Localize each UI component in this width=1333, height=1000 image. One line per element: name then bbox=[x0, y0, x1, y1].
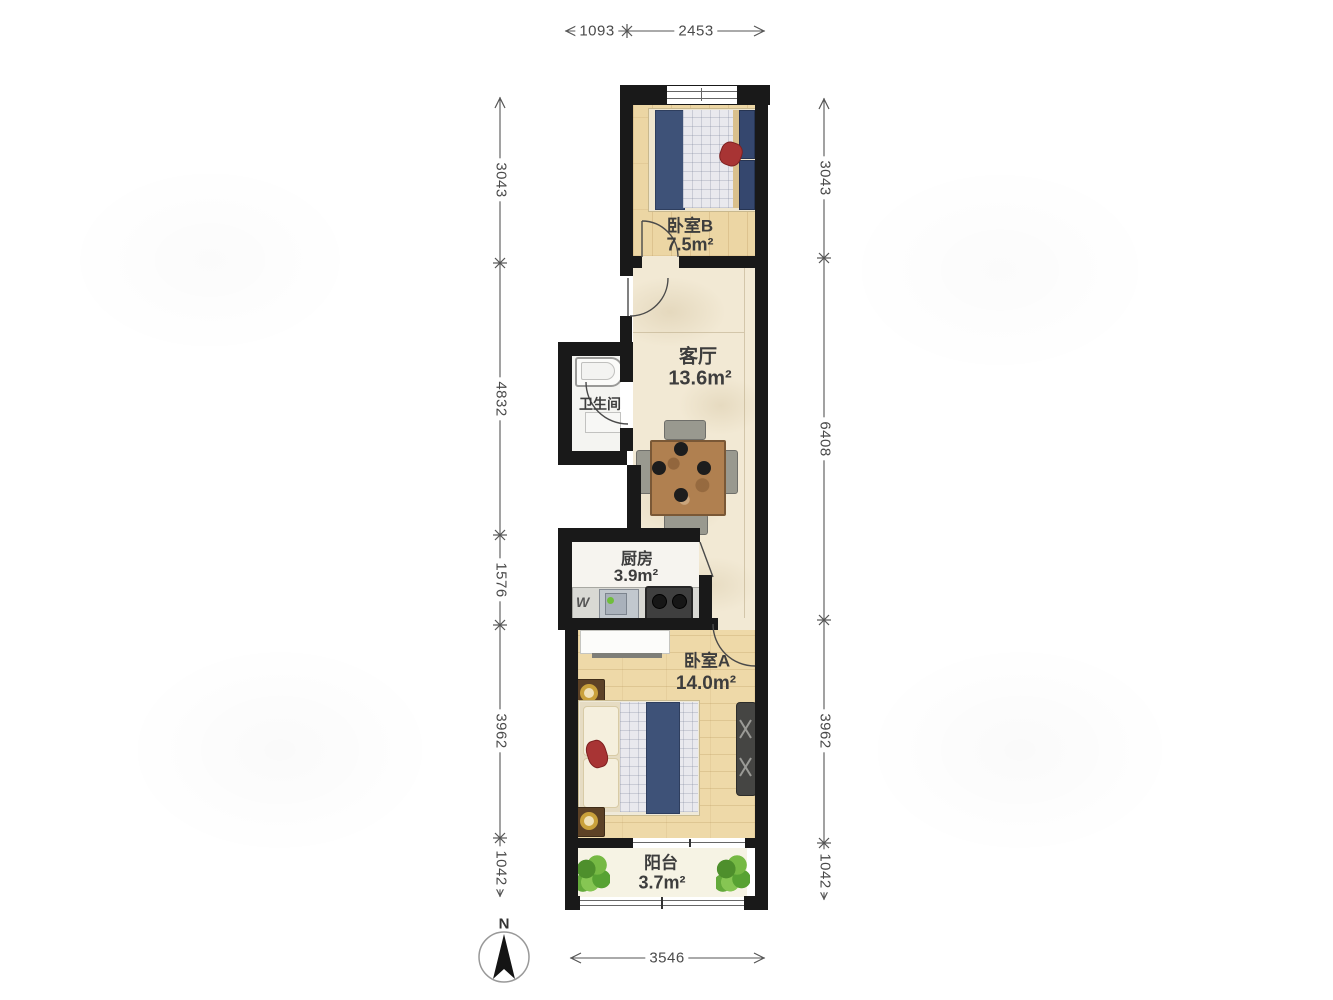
kitchen-door-diagonal bbox=[700, 542, 713, 577]
room-area-bedroom-b: 7.5m² bbox=[666, 235, 713, 256]
compass-north-label: N bbox=[499, 916, 510, 933]
dim-left-1042: 1042 bbox=[493, 846, 510, 889]
dim-left-1576: 1576 bbox=[493, 558, 510, 601]
room-area-bedroom-a: 14.0m² bbox=[676, 673, 736, 695]
dim-top-1093: 1093 bbox=[575, 23, 618, 40]
dim-right-1042: 1042 bbox=[817, 849, 834, 892]
floorplan-canvas: W bbox=[0, 0, 1333, 1000]
dim-bottom-3546: 3546 bbox=[645, 950, 688, 967]
dimension-marks bbox=[493, 24, 831, 963]
dim-right-3043: 3043 bbox=[817, 156, 834, 199]
dim-right-3962: 3962 bbox=[817, 709, 834, 752]
wardrobe-x-marks bbox=[740, 720, 751, 776]
room-label-balcony: 阳台 bbox=[644, 849, 678, 874]
compass-north-icon bbox=[479, 932, 529, 982]
dimension-lines bbox=[500, 31, 824, 958]
dim-left-3043: 3043 bbox=[493, 158, 510, 201]
dim-left-4832: 4832 bbox=[493, 377, 510, 420]
dim-top-2453: 2453 bbox=[674, 23, 717, 40]
dim-right-6408: 6408 bbox=[817, 417, 834, 460]
room-area-kitchen: 3.9m² bbox=[614, 566, 658, 586]
door-arcs bbox=[586, 221, 755, 666]
room-label-bedroom-a: 卧室A bbox=[684, 647, 730, 672]
room-label-living-room: 客厅 bbox=[679, 342, 717, 369]
room-label-bedroom-b: 卧室B bbox=[667, 212, 713, 237]
door-arc-entry bbox=[630, 278, 668, 316]
room-area-balcony: 3.7m² bbox=[638, 873, 685, 894]
room-area-living-room: 13.6m² bbox=[668, 368, 731, 391]
dim-left-3962: 3962 bbox=[493, 709, 510, 752]
room-label-bathroom: 卫生间 bbox=[579, 394, 621, 414]
